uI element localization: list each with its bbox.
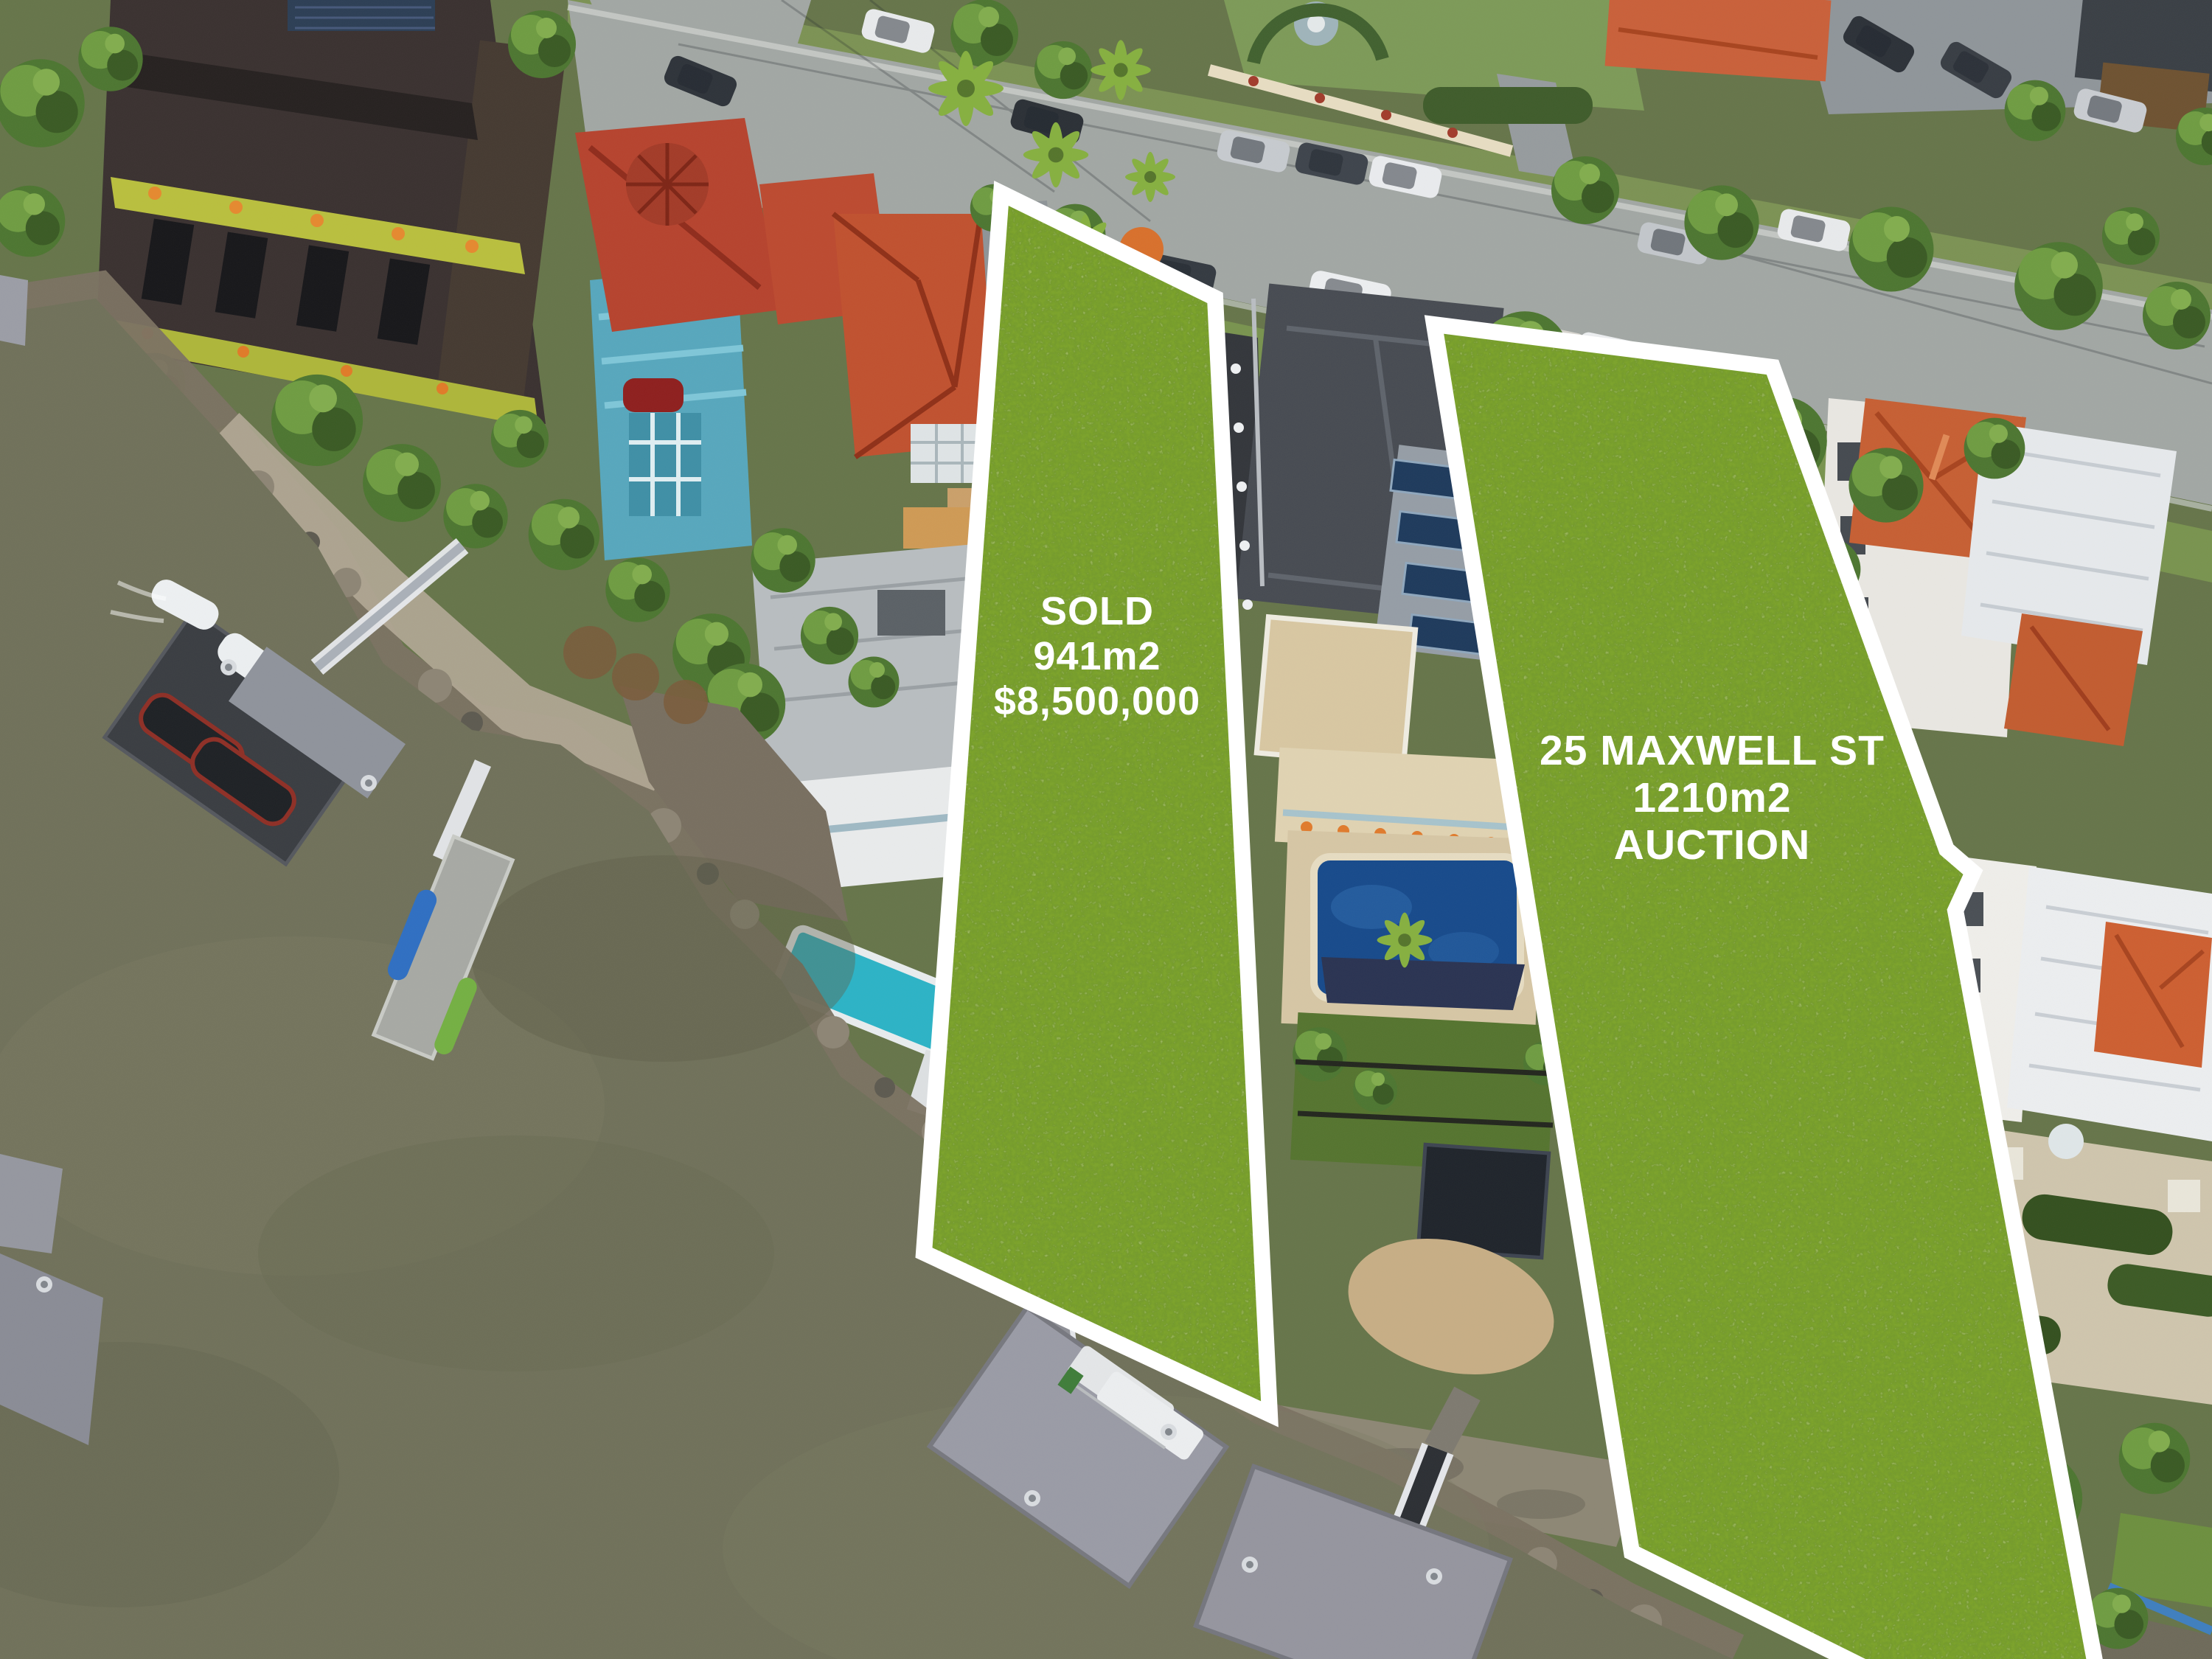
aerial-photo: SOLD 941m2 $8,500,000 25 MAXWELL ST 1210… xyxy=(0,0,2212,1659)
auction-area-text: 1210m2 xyxy=(1454,774,1970,821)
auction-method-text: AUCTION xyxy=(1454,821,1970,869)
sold-lot-label: SOLD 941m2 $8,500,000 xyxy=(876,589,1318,724)
auction-lot-label: 25 MAXWELL ST 1210m2 AUCTION xyxy=(1454,727,1970,869)
sold-status-text: SOLD xyxy=(876,589,1318,634)
auction-address-text: 25 MAXWELL ST xyxy=(1454,727,1970,774)
sold-price-text: $8,500,000 xyxy=(876,679,1318,724)
sold-area-text: 941m2 xyxy=(876,634,1318,679)
